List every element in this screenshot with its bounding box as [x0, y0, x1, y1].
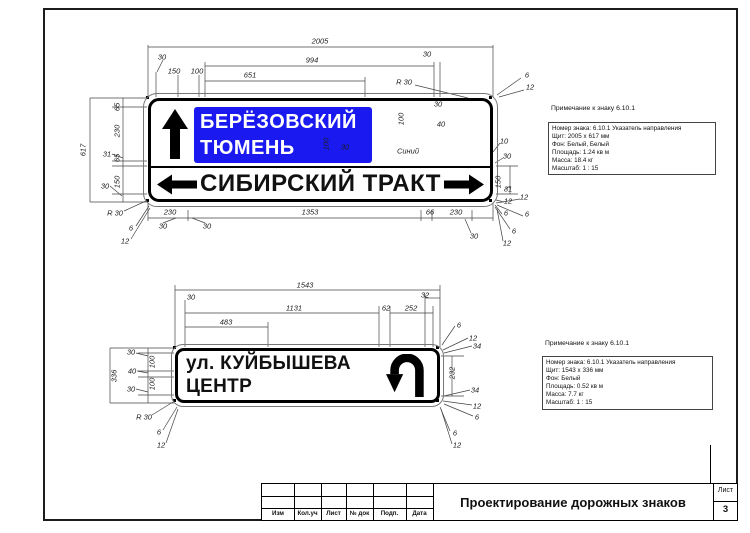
- dim-label: 30: [203, 222, 211, 231]
- dim-label: 230: [164, 208, 177, 217]
- left-arrow-icon: [157, 174, 197, 195]
- dim-label: 651: [244, 71, 257, 80]
- dim-label: 30: [127, 348, 135, 357]
- note-line: Площадь: 1.24 кв м: [552, 149, 712, 157]
- note-line: Номер знака: 6.10.1 Указатель направлени…: [552, 125, 712, 133]
- note-line: Номер знака: 6.10.1 Указатель направлени…: [546, 359, 709, 367]
- dim-label: 1131: [286, 304, 302, 313]
- dim-label: 6: [457, 321, 461, 330]
- dim-label: 100: [148, 378, 157, 391]
- u-turn-arrow-icon: [386, 354, 428, 398]
- dim-label: 30: [127, 385, 135, 394]
- dim-label: 1353: [302, 208, 319, 217]
- dim-label: 150: [113, 176, 122, 189]
- note-heading-top-sign: Примечание к знаку 6.10.1: [551, 105, 635, 112]
- title-block-column-labels: Изм Кол.уч Лист № док Подп. Дата: [262, 508, 433, 519]
- dim-label: 30: [470, 232, 478, 241]
- blue-destination-panel: БЕРЁЗОВСКИЙ ТЮМЕНЬ: [194, 107, 372, 163]
- sheet-label: Лист: [714, 487, 737, 494]
- sheet-cell: Лист 3: [713, 484, 737, 520]
- sign-row-divider: [151, 166, 490, 168]
- dim-label: 12: [503, 239, 511, 248]
- dim-label: 30: [158, 53, 166, 62]
- dim-label: 40: [437, 120, 445, 129]
- dim-label: 100: [148, 356, 157, 369]
- dim-label: 12: [520, 193, 528, 202]
- dim-label: 65: [113, 154, 122, 162]
- dim-label: 230: [450, 208, 463, 217]
- dim-label: 150: [168, 67, 181, 76]
- col-nodok: № док: [346, 508, 373, 519]
- dim-label: 6: [525, 210, 529, 219]
- dim-label: 6: [525, 71, 529, 80]
- title-block: Изм Кол.уч Лист № док Подп. Дата Проекти…: [261, 483, 738, 521]
- dim-label: 10: [500, 137, 508, 146]
- note-box-top-sign: Номер знака: 6.10.1 Указатель направлени…: [548, 122, 716, 175]
- dim-label: 12: [453, 441, 461, 450]
- dim-label: 12: [473, 402, 481, 411]
- dim-label: 6: [475, 413, 479, 422]
- dim-label: 100: [322, 138, 331, 151]
- note-line: Масштаб: 1 : 15: [552, 165, 712, 173]
- title-block-extension-line: [710, 445, 711, 483]
- col-izm: Изм: [262, 508, 294, 519]
- street-name-text: СИБИРСКИЙ ТРАКТ: [199, 170, 442, 198]
- dim-label: 30: [101, 182, 109, 191]
- dim-label: 32: [421, 291, 429, 300]
- dim-label: 232: [448, 367, 457, 380]
- col-data: Дата: [406, 508, 433, 519]
- top-sign-face: БЕРЁЗОВСКИЙ ТЮМЕНЬ СИБИРСКИЙ ТРАКТ: [148, 98, 493, 202]
- bottom-sign-face: ул. КУЙБЫШЕВА ЦЕНТР: [175, 348, 440, 403]
- dim-label: 2005: [312, 37, 329, 46]
- dim-label: 150: [494, 176, 503, 189]
- dim-label: 100: [397, 113, 406, 126]
- dim-label: R 30: [396, 78, 412, 87]
- dim-label: 12: [157, 441, 165, 450]
- note-heading-bottom-sign: Примечание к знаку 6.10.1: [545, 340, 629, 347]
- note-line: Масштаб: 1 : 15: [546, 399, 709, 407]
- dim-label: 6: [453, 429, 457, 438]
- note-line: Фон: Белый: [546, 375, 709, 383]
- destination-line-1: БЕРЁЗОВСКИЙ: [200, 109, 372, 135]
- dim-label: 1543: [297, 281, 314, 290]
- dim-label: 30: [159, 222, 167, 231]
- dim-label: 34: [473, 342, 481, 351]
- dim-label: Синий: [397, 147, 419, 156]
- note-line: Масса: 7.7 кг: [546, 391, 709, 399]
- dim-label: 34: [471, 386, 479, 395]
- street-line-1: ул. КУЙБЫШЕВА: [186, 352, 351, 375]
- col-koluch: Кол.уч: [294, 508, 321, 519]
- dim-label: 100: [191, 67, 204, 76]
- dim-label: 30: [423, 50, 431, 59]
- note-box-bottom-sign: Номер знака: 6.10.1 Указатель направлени…: [542, 356, 713, 410]
- dim-label: 483: [220, 318, 233, 327]
- col-podp: Подп.: [373, 508, 406, 519]
- dim-label: 40: [128, 367, 136, 376]
- dim-label: 252: [405, 304, 418, 313]
- dim-label: 994: [306, 56, 319, 65]
- note-line: Фон: Белый, Белый: [552, 141, 712, 149]
- dim-label: 30: [503, 152, 511, 161]
- dim-label: 62: [382, 304, 390, 313]
- dim-label: 66: [426, 208, 434, 217]
- dim-label: 617: [79, 144, 88, 157]
- note-line: Масса: 18.4 кг: [552, 157, 712, 165]
- dim-label: R 30: [107, 209, 123, 218]
- sheet-number: 3: [714, 504, 737, 515]
- dim-label: 6: [157, 428, 161, 437]
- dim-label: 6: [129, 224, 133, 233]
- street-line-2: ЦЕНТР: [186, 375, 351, 398]
- document-title: Проектирование дорожных знаков: [433, 484, 713, 520]
- dim-label: 12: [121, 237, 129, 246]
- dim-label: 6: [512, 227, 516, 236]
- dim-label: 31: [103, 150, 111, 159]
- dim-label: 30: [434, 100, 442, 109]
- dim-label: 230: [113, 125, 122, 138]
- sheet-frame: [43, 8, 738, 521]
- col-list: Лист: [321, 508, 346, 519]
- dim-label: 65: [113, 103, 122, 111]
- dim-label: 336: [110, 370, 119, 383]
- note-line: Площадь: 0.52 кв м: [546, 383, 709, 391]
- right-arrow-icon: [444, 174, 484, 195]
- dim-label: 12: [526, 83, 534, 92]
- note-line: Щит: 1543 x 336 мм: [546, 367, 709, 375]
- note-line: Щит: 2005 x 617 мм: [552, 133, 712, 141]
- dim-label: 30: [341, 143, 349, 152]
- dim-label: 30: [187, 293, 195, 302]
- dim-label: 31: [504, 185, 512, 194]
- dim-label: 6: [504, 209, 508, 218]
- dim-label: 12: [504, 197, 512, 206]
- up-arrow-icon: [162, 109, 188, 159]
- dim-label: R 30: [136, 413, 152, 422]
